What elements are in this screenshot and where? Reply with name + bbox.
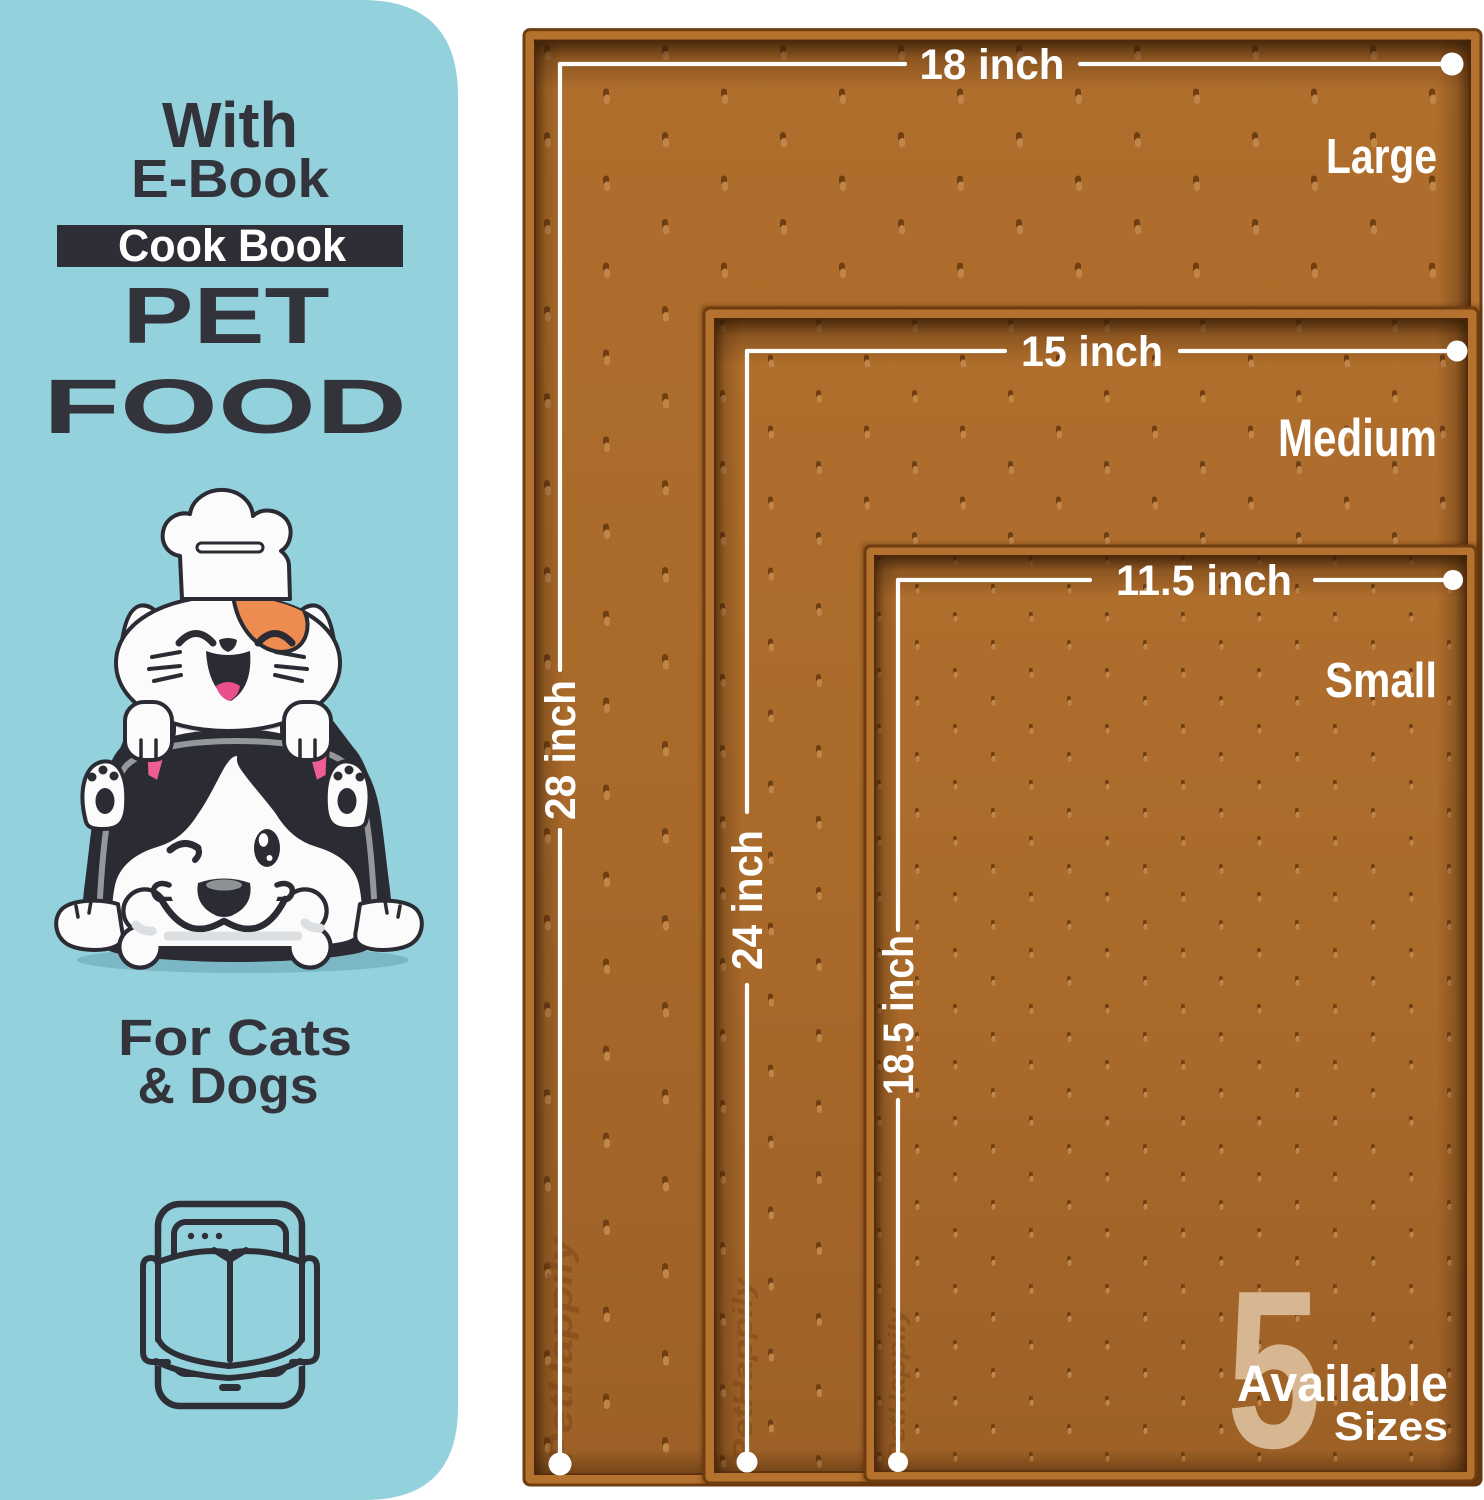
svg-text:Cook Book: Cook Book (118, 220, 347, 271)
svg-text:PET: PET (123, 271, 330, 360)
svg-text:Small: Small (1325, 654, 1437, 708)
svg-text:11.5 inch: 11.5 inch (1116, 557, 1292, 605)
svg-text:E-Book: E-Book (131, 149, 330, 209)
svg-text:FOOD: FOOD (43, 364, 407, 450)
svg-text:Available: Available (1237, 1355, 1448, 1412)
svg-text:Large: Large (1326, 130, 1437, 184)
svg-text:18.5 inch: 18.5 inch (875, 935, 923, 1095)
svg-text:Sizes: Sizes (1334, 1405, 1448, 1449)
svg-text:PetHappily: PetHappily (727, 1276, 758, 1463)
svg-text:24 inch: 24 inch (724, 830, 772, 970)
svg-text:15 inch: 15 inch (1021, 328, 1163, 376)
svg-text:Medium: Medium (1278, 409, 1437, 468)
svg-text:28 inch: 28 inch (537, 680, 585, 820)
svg-text:& Dogs: & Dogs (138, 1057, 319, 1114)
svg-text:18 inch: 18 inch (920, 41, 1065, 89)
